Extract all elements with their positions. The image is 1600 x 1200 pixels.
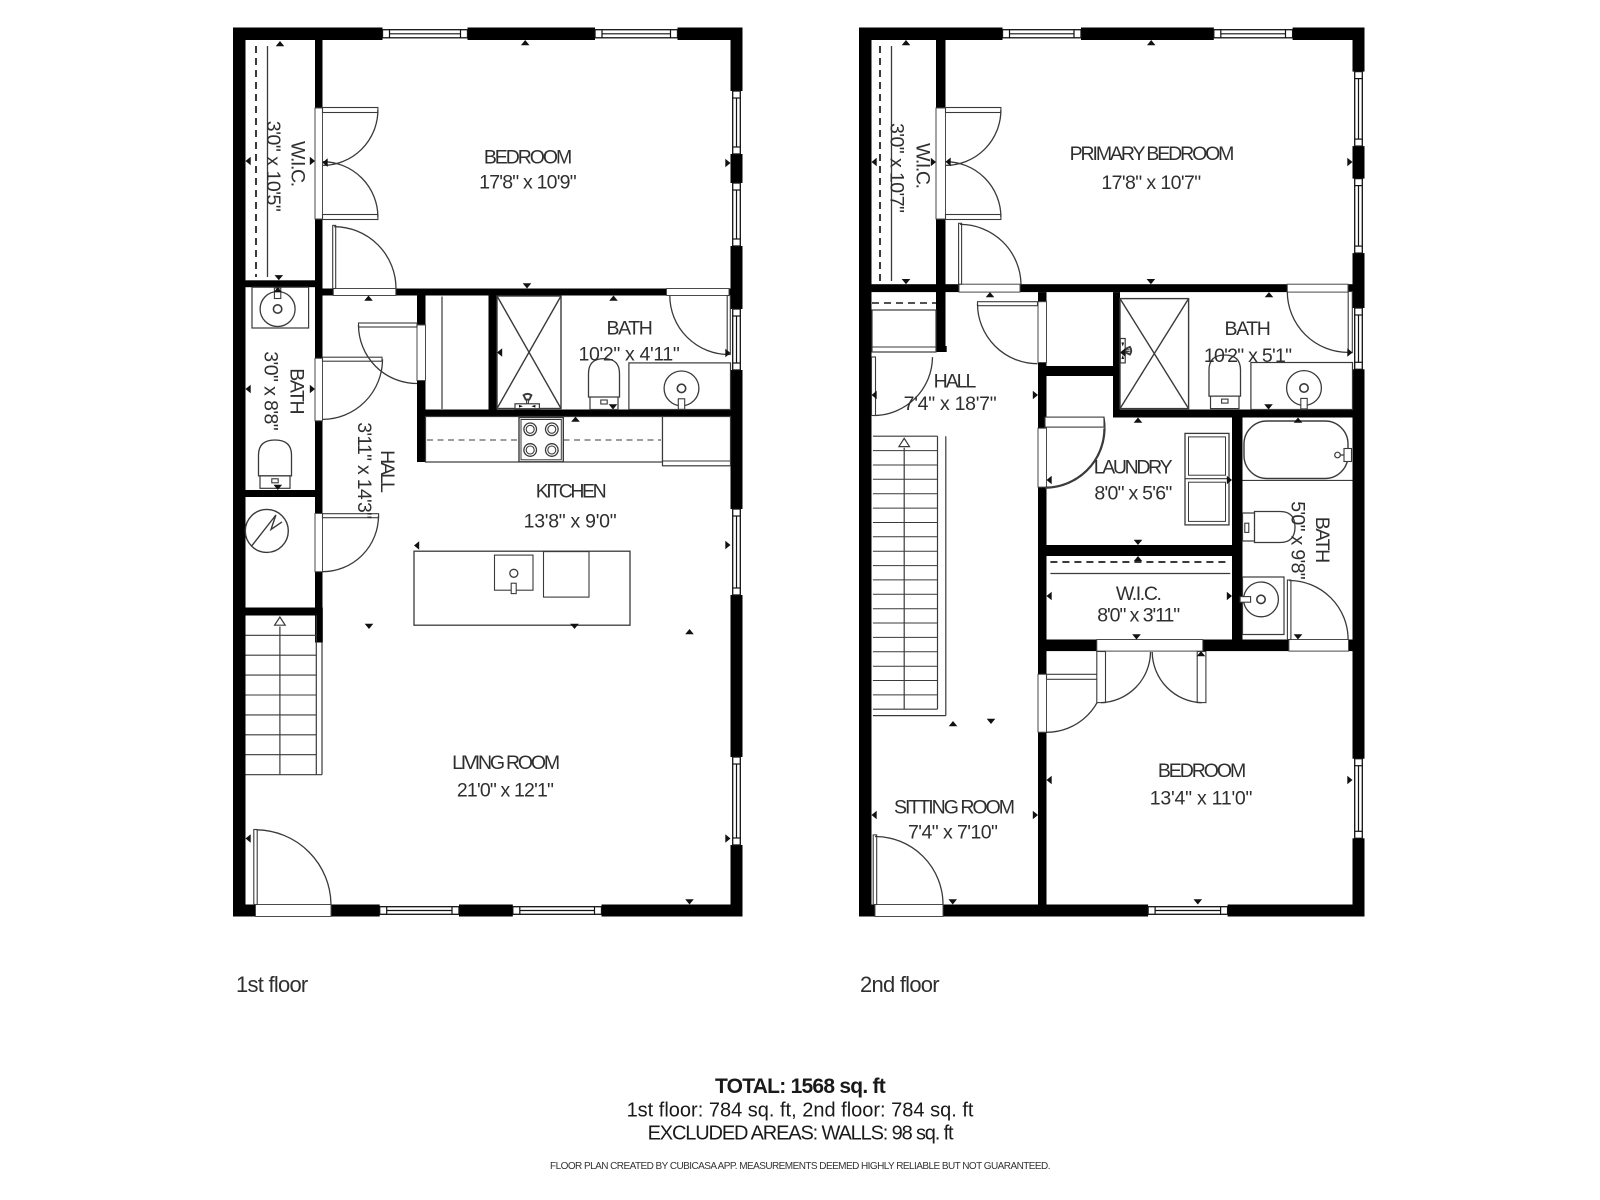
svg-text:HALL: HALL: [934, 370, 977, 392]
svg-text:8'0" x 3'11": 8'0" x 3'11": [1097, 605, 1180, 627]
svg-text:3'0" x 10'5": 3'0" x 10'5": [262, 121, 284, 212]
svg-text:BATH: BATH: [1225, 318, 1270, 340]
svg-text:LIVING ROOM: LIVING ROOM: [452, 752, 559, 774]
svg-text:BEDROOM: BEDROOM: [1158, 760, 1245, 782]
svg-text:3'0" x 8'8": 3'0" x 8'8": [259, 351, 281, 430]
svg-text:BATH: BATH: [607, 317, 652, 339]
svg-text:W.I.C.: W.I.C.: [1116, 583, 1161, 605]
svg-text:3'11" x 14'3": 3'11" x 14'3": [353, 422, 375, 519]
svg-text:21'0" x 12'1": 21'0" x 12'1": [457, 779, 554, 801]
svg-text:BATH: BATH: [285, 368, 307, 413]
svg-text:BATH: BATH: [1311, 517, 1333, 562]
svg-text:17'8" x 10'7": 17'8" x 10'7": [1101, 172, 1201, 194]
svg-text:PRIMARY BEDROOM: PRIMARY BEDROOM: [1070, 143, 1234, 165]
svg-text:W.I.C.: W.I.C.: [912, 143, 934, 188]
svg-text:W.I.C.: W.I.C.: [286, 141, 308, 186]
svg-text:7'4" x 18'7": 7'4" x 18'7": [904, 393, 997, 415]
svg-text:KITCHEN: KITCHEN: [536, 480, 606, 502]
svg-text:FLOOR PLAN CREATED BY CUBICASA: FLOOR PLAN CREATED BY CUBICASA APP. MEAS…: [550, 1161, 1050, 1172]
svg-text:3'0" x 10'7": 3'0" x 10'7": [886, 123, 908, 213]
svg-text:1st floor: 1st floor: [236, 972, 308, 997]
svg-text:2nd floor: 2nd floor: [860, 972, 939, 997]
svg-text:SITTING ROOM: SITTING ROOM: [894, 797, 1014, 819]
svg-text:LAUNDRY: LAUNDRY: [1094, 456, 1173, 478]
svg-text:TOTAL: 1568 sq. ft: TOTAL: 1568 sq. ft: [715, 1075, 886, 1098]
svg-text:7'4" x 7'10": 7'4" x 7'10": [908, 822, 998, 844]
svg-text:13'4" x 11'0": 13'4" x 11'0": [1150, 788, 1253, 810]
svg-text:17'8" x 10'9": 17'8" x 10'9": [479, 172, 577, 194]
svg-text:BEDROOM: BEDROOM: [484, 147, 571, 169]
svg-text:10'2" x 5'1": 10'2" x 5'1": [1204, 345, 1292, 367]
svg-text:HALL: HALL: [376, 450, 398, 493]
svg-text:EXCLUDED AREAS: WALLS: 98 sq.: EXCLUDED AREAS: WALLS: 98 sq. ft: [648, 1123, 954, 1145]
svg-text:1st floor: 784 sq. ft, 2nd flo: 1st floor: 784 sq. ft, 2nd floor: 784 sq…: [627, 1100, 974, 1122]
svg-text:8'0" x 5'6": 8'0" x 5'6": [1094, 483, 1172, 505]
svg-text:10'2" x 4'11": 10'2" x 4'11": [579, 343, 680, 365]
svg-text:13'8" x 9'0": 13'8" x 9'0": [524, 511, 617, 533]
svg-text:5'0" x 9'8": 5'0" x 9'8": [1287, 501, 1309, 580]
